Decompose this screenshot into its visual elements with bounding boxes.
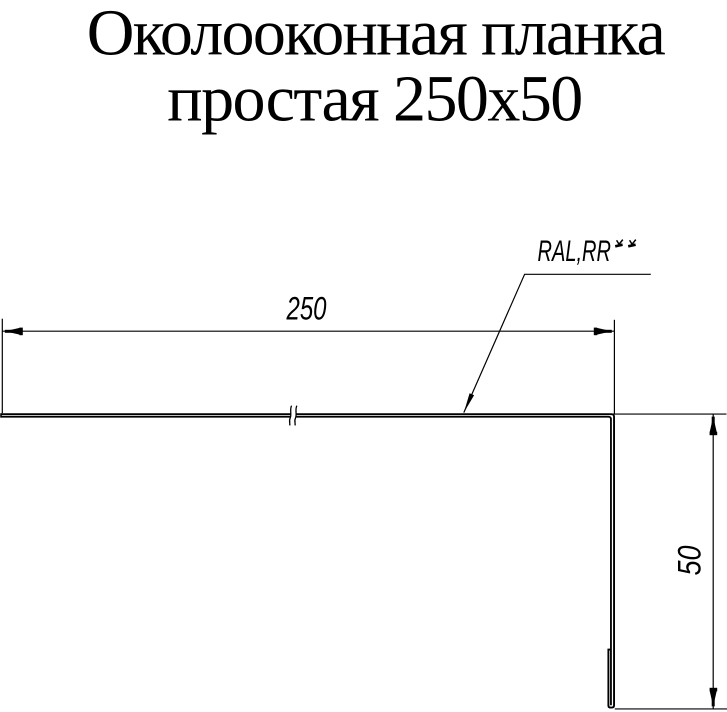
svg-text:250: 250 <box>286 291 327 327</box>
svg-text:простая 250х50: простая 250х50 <box>167 62 583 135</box>
svg-text:RAL,RR: RAL,RR <box>538 235 612 268</box>
svg-text:Околооконная планка: Околооконная планка <box>87 0 666 70</box>
svg-text:50: 50 <box>672 545 708 575</box>
